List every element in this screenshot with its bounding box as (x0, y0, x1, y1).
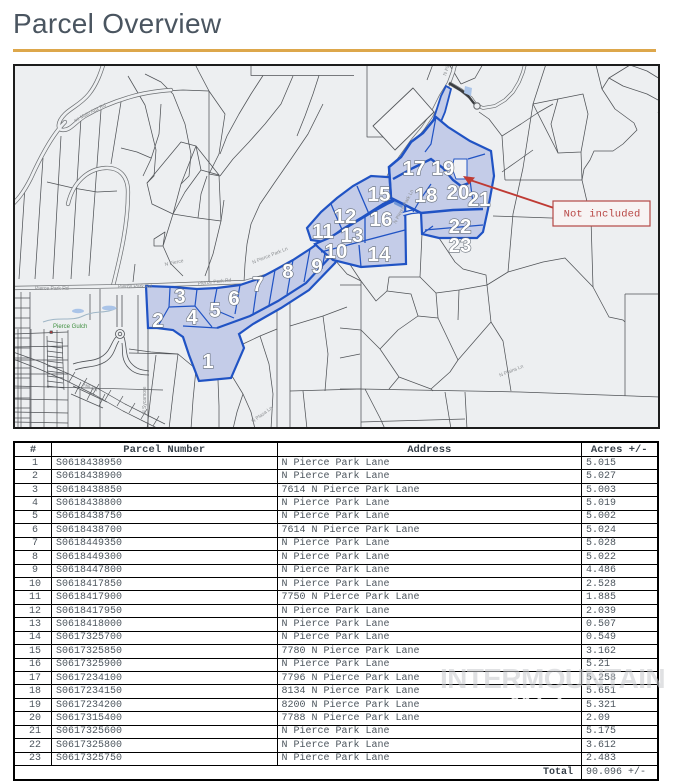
svg-text:6: 6 (228, 287, 239, 310)
svg-text:1: 1 (202, 350, 213, 373)
svg-text:16: 16 (370, 208, 393, 231)
svg-text:15: 15 (368, 183, 391, 206)
svg-text:8: 8 (282, 260, 293, 283)
svg-text:Pierce Gulch: Pierce Gulch (53, 324, 87, 330)
svg-text:11: 11 (312, 220, 334, 243)
svg-text:20: 20 (447, 181, 470, 204)
svg-text:3: 3 (174, 285, 185, 308)
svg-text:N Sycamore: N Sycamore (142, 386, 148, 414)
svg-text:18: 18 (415, 184, 438, 207)
svg-text:19: 19 (432, 157, 455, 180)
svg-text:9: 9 (311, 255, 322, 278)
svg-text:17: 17 (403, 157, 426, 180)
svg-text:21: 21 (468, 188, 491, 211)
svg-text:2: 2 (152, 309, 163, 332)
svg-text:Pierce Park Rd: Pierce Park Rd (35, 286, 69, 292)
svg-text:23: 23 (449, 234, 472, 257)
svg-text:7: 7 (252, 273, 263, 296)
svg-text:14: 14 (368, 243, 391, 266)
svg-text:Pierce Park Rd: Pierce Park Rd (118, 284, 152, 290)
svg-text:13: 13 (341, 224, 364, 247)
svg-text:5: 5 (209, 299, 220, 322)
svg-text:4: 4 (186, 306, 198, 329)
svg-text:Not included: Not included (564, 209, 641, 221)
